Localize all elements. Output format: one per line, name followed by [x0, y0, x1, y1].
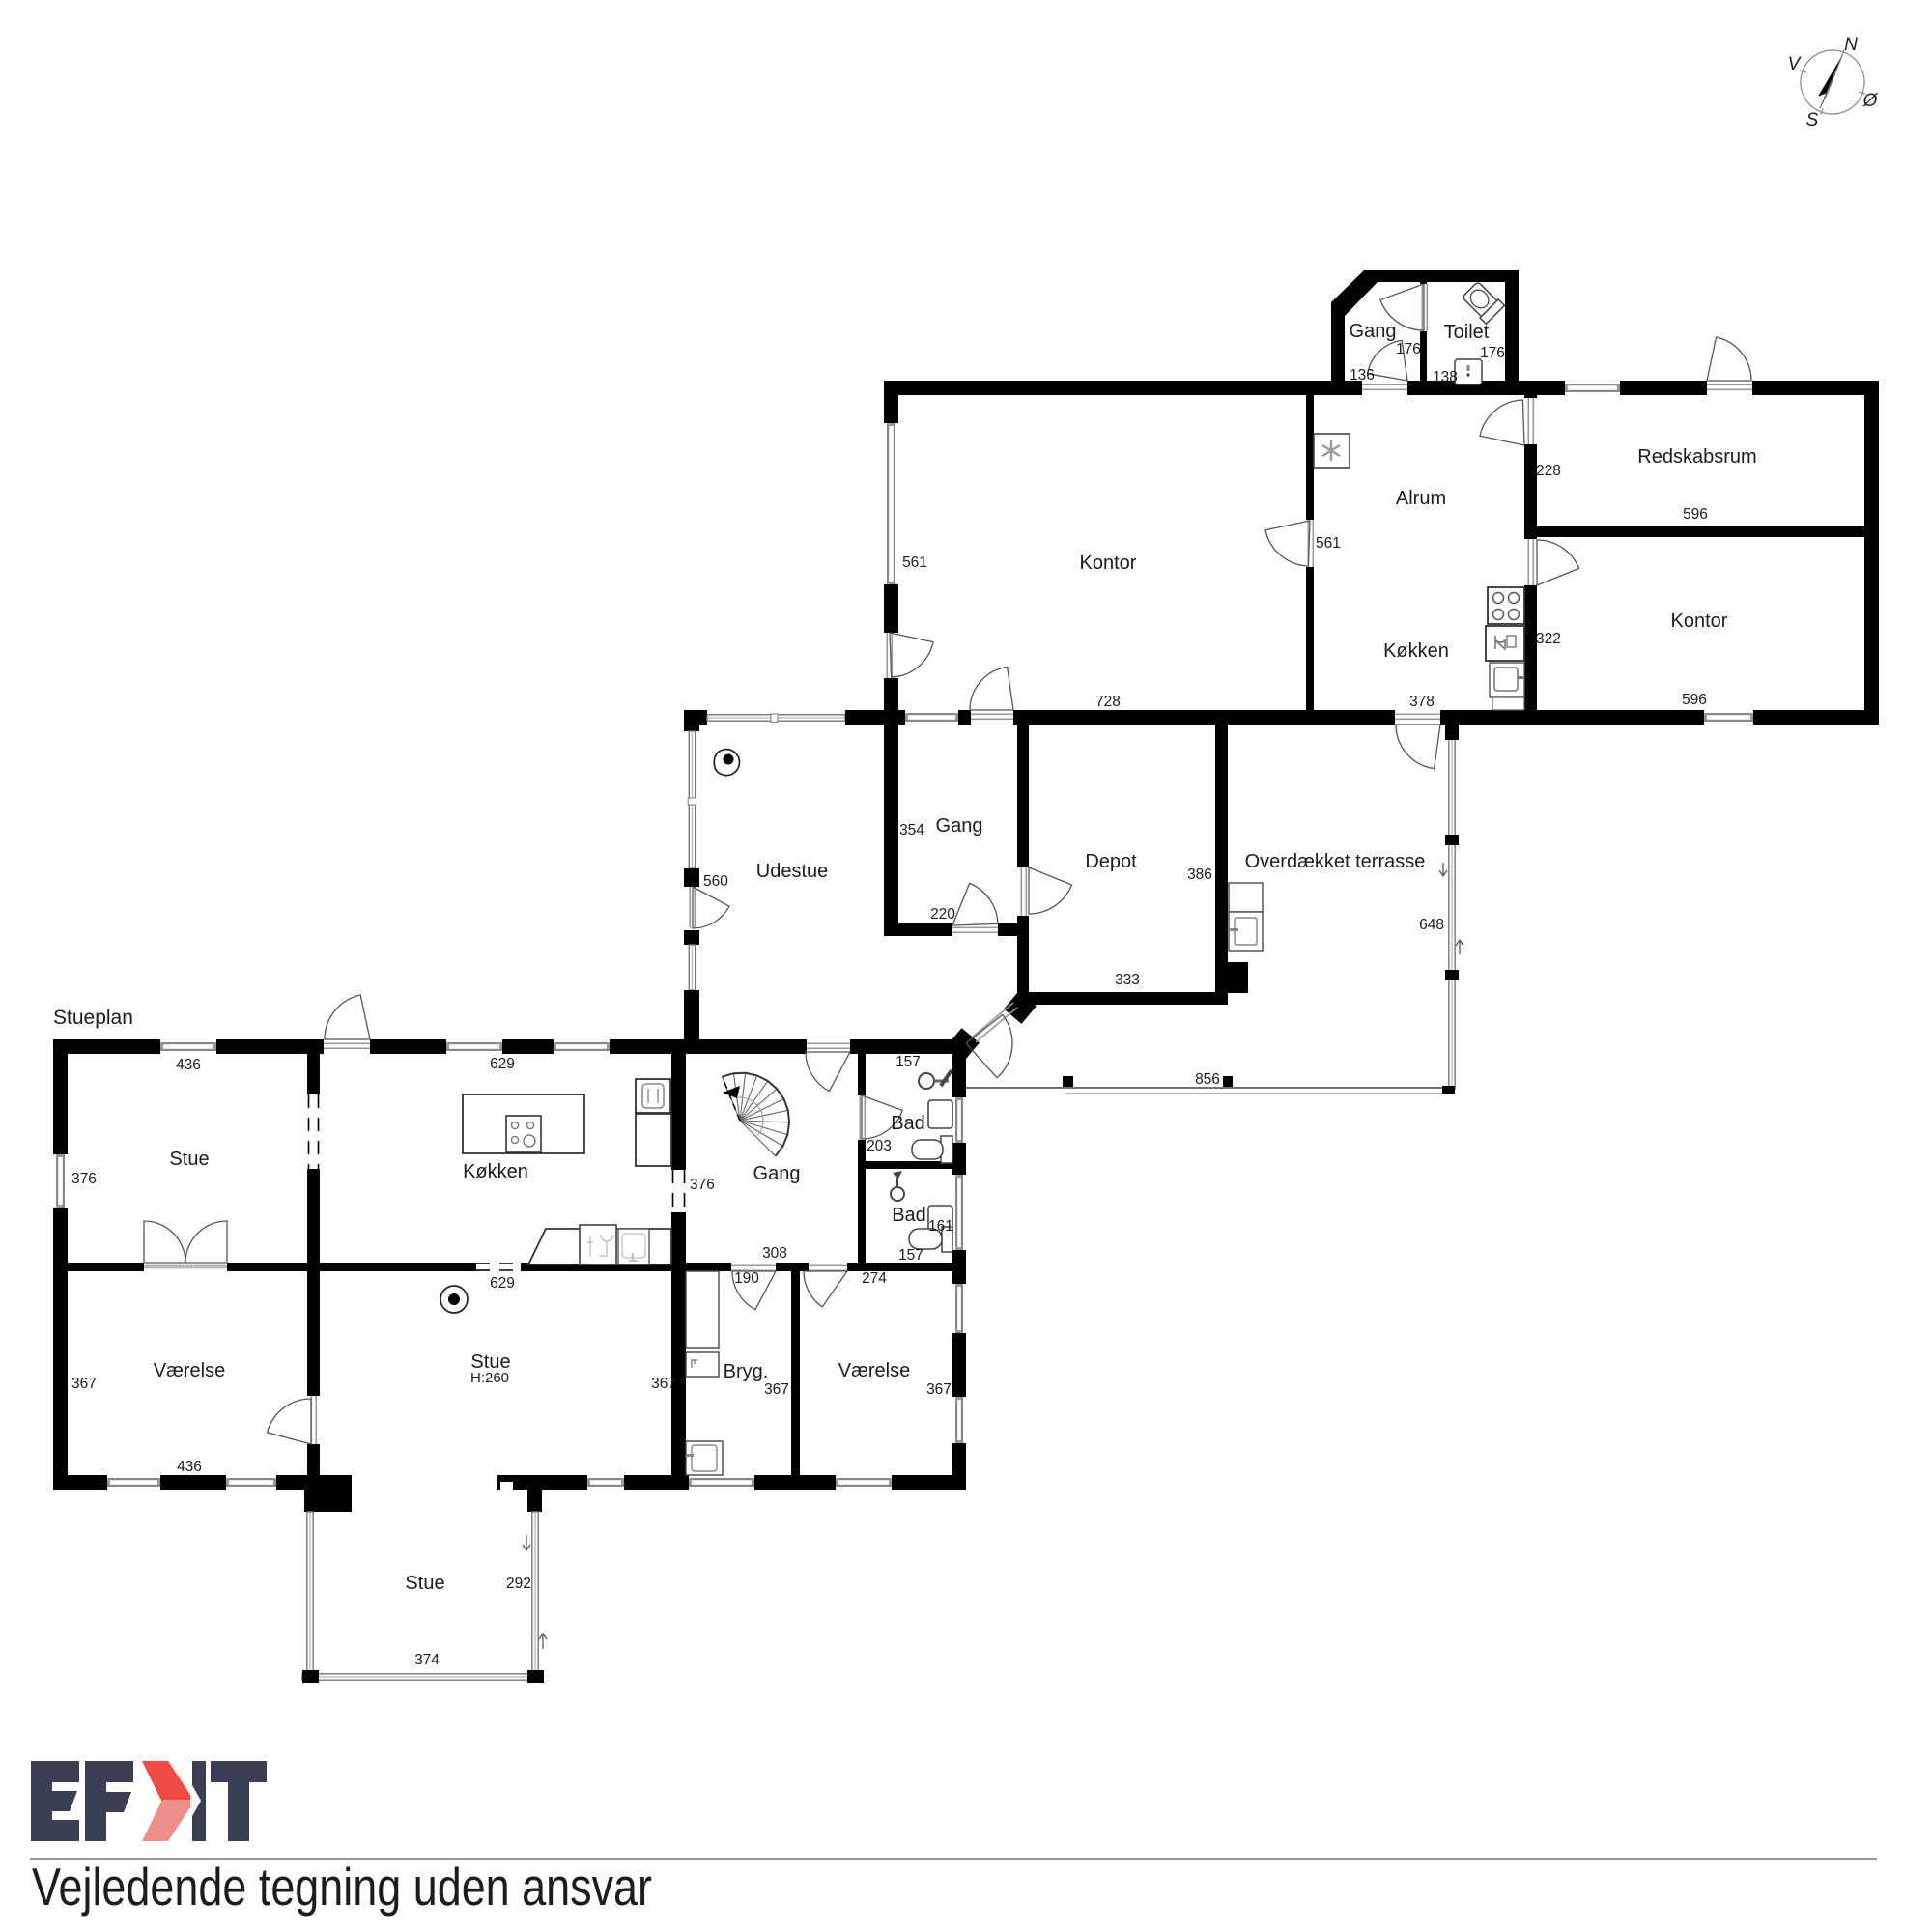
svg-text:436: 436: [177, 1459, 202, 1475]
svg-text:Depot: Depot: [1085, 851, 1137, 872]
svg-text:138: 138: [1433, 369, 1458, 385]
svg-text:292: 292: [506, 1576, 531, 1592]
svg-text:560: 560: [703, 873, 728, 890]
svg-text:Køkken: Køkken: [463, 1161, 528, 1182]
svg-text:Stue: Stue: [405, 1573, 444, 1594]
svg-text:728: 728: [1095, 694, 1121, 710]
svg-text:274: 274: [862, 1270, 887, 1287]
svg-text:Køkken: Køkken: [1383, 640, 1449, 662]
svg-text:Stue: Stue: [169, 1149, 209, 1170]
svg-text:Gang: Gang: [936, 815, 983, 837]
svg-text:856: 856: [1195, 1071, 1220, 1088]
svg-text:367: 367: [764, 1381, 789, 1398]
svg-text:367: 367: [71, 1376, 97, 1392]
svg-text:S: S: [1806, 110, 1819, 130]
svg-text:596: 596: [1682, 692, 1707, 708]
svg-text:228: 228: [1536, 463, 1561, 479]
svg-text:Kontor: Kontor: [1671, 611, 1728, 632]
svg-text:Bryg.: Bryg.: [724, 1361, 769, 1382]
svg-text:374: 374: [414, 1652, 440, 1668]
svg-text:Værelse: Værelse: [838, 1360, 910, 1381]
svg-text:161: 161: [928, 1218, 953, 1235]
svg-text:561: 561: [902, 554, 927, 571]
svg-text:Værelse: Værelse: [154, 1360, 225, 1381]
svg-text:378: 378: [1409, 694, 1435, 710]
svg-text:Bad: Bad: [891, 1113, 925, 1134]
svg-text:H:260: H:260: [470, 1370, 509, 1386]
svg-text:136: 136: [1350, 367, 1375, 384]
svg-text:376: 376: [690, 1177, 715, 1193]
svg-text:596: 596: [1683, 506, 1708, 523]
svg-text:386: 386: [1187, 867, 1212, 883]
svg-text:Gang: Gang: [753, 1163, 801, 1184]
svg-text:190: 190: [734, 1270, 759, 1287]
svg-text:Bad: Bad: [892, 1205, 926, 1226]
svg-text:629: 629: [490, 1275, 515, 1292]
svg-text:Gang: Gang: [1350, 321, 1397, 342]
svg-text:354: 354: [899, 822, 924, 838]
svg-text:376: 376: [71, 1171, 97, 1187]
svg-text:Kontor: Kontor: [1080, 553, 1137, 574]
svg-text:629: 629: [490, 1056, 515, 1072]
svg-text:157: 157: [898, 1247, 923, 1264]
svg-text:Alrum: Alrum: [1396, 488, 1446, 509]
svg-text:436: 436: [176, 1057, 201, 1073]
svg-text:Vejledende tegning uden ansvar: Vejledende tegning uden ansvar: [32, 1857, 652, 1917]
svg-text:N: N: [1844, 35, 1858, 55]
svg-text:203: 203: [867, 1138, 892, 1154]
svg-text:333: 333: [1115, 972, 1140, 988]
svg-text:Redskabsrum: Redskabsrum: [1637, 446, 1756, 468]
svg-text:220: 220: [930, 906, 955, 923]
svg-text:157: 157: [895, 1054, 921, 1070]
svg-text:367: 367: [651, 1376, 676, 1392]
svg-text:Stueplan: Stueplan: [53, 1007, 133, 1029]
svg-text:Toilet: Toilet: [1444, 322, 1490, 343]
svg-text:Ø: Ø: [1862, 91, 1879, 111]
svg-text:308: 308: [762, 1245, 787, 1262]
svg-text:322: 322: [1536, 631, 1561, 647]
svg-text:Udestue: Udestue: [756, 861, 829, 882]
svg-text:648: 648: [1419, 917, 1444, 933]
svg-text:367: 367: [926, 1381, 952, 1398]
svg-text:176: 176: [1396, 341, 1421, 357]
svg-text:561: 561: [1316, 535, 1341, 552]
svg-text:176: 176: [1480, 345, 1505, 361]
svg-text:Overdækket terrasse: Overdækket terrasse: [1245, 851, 1426, 872]
